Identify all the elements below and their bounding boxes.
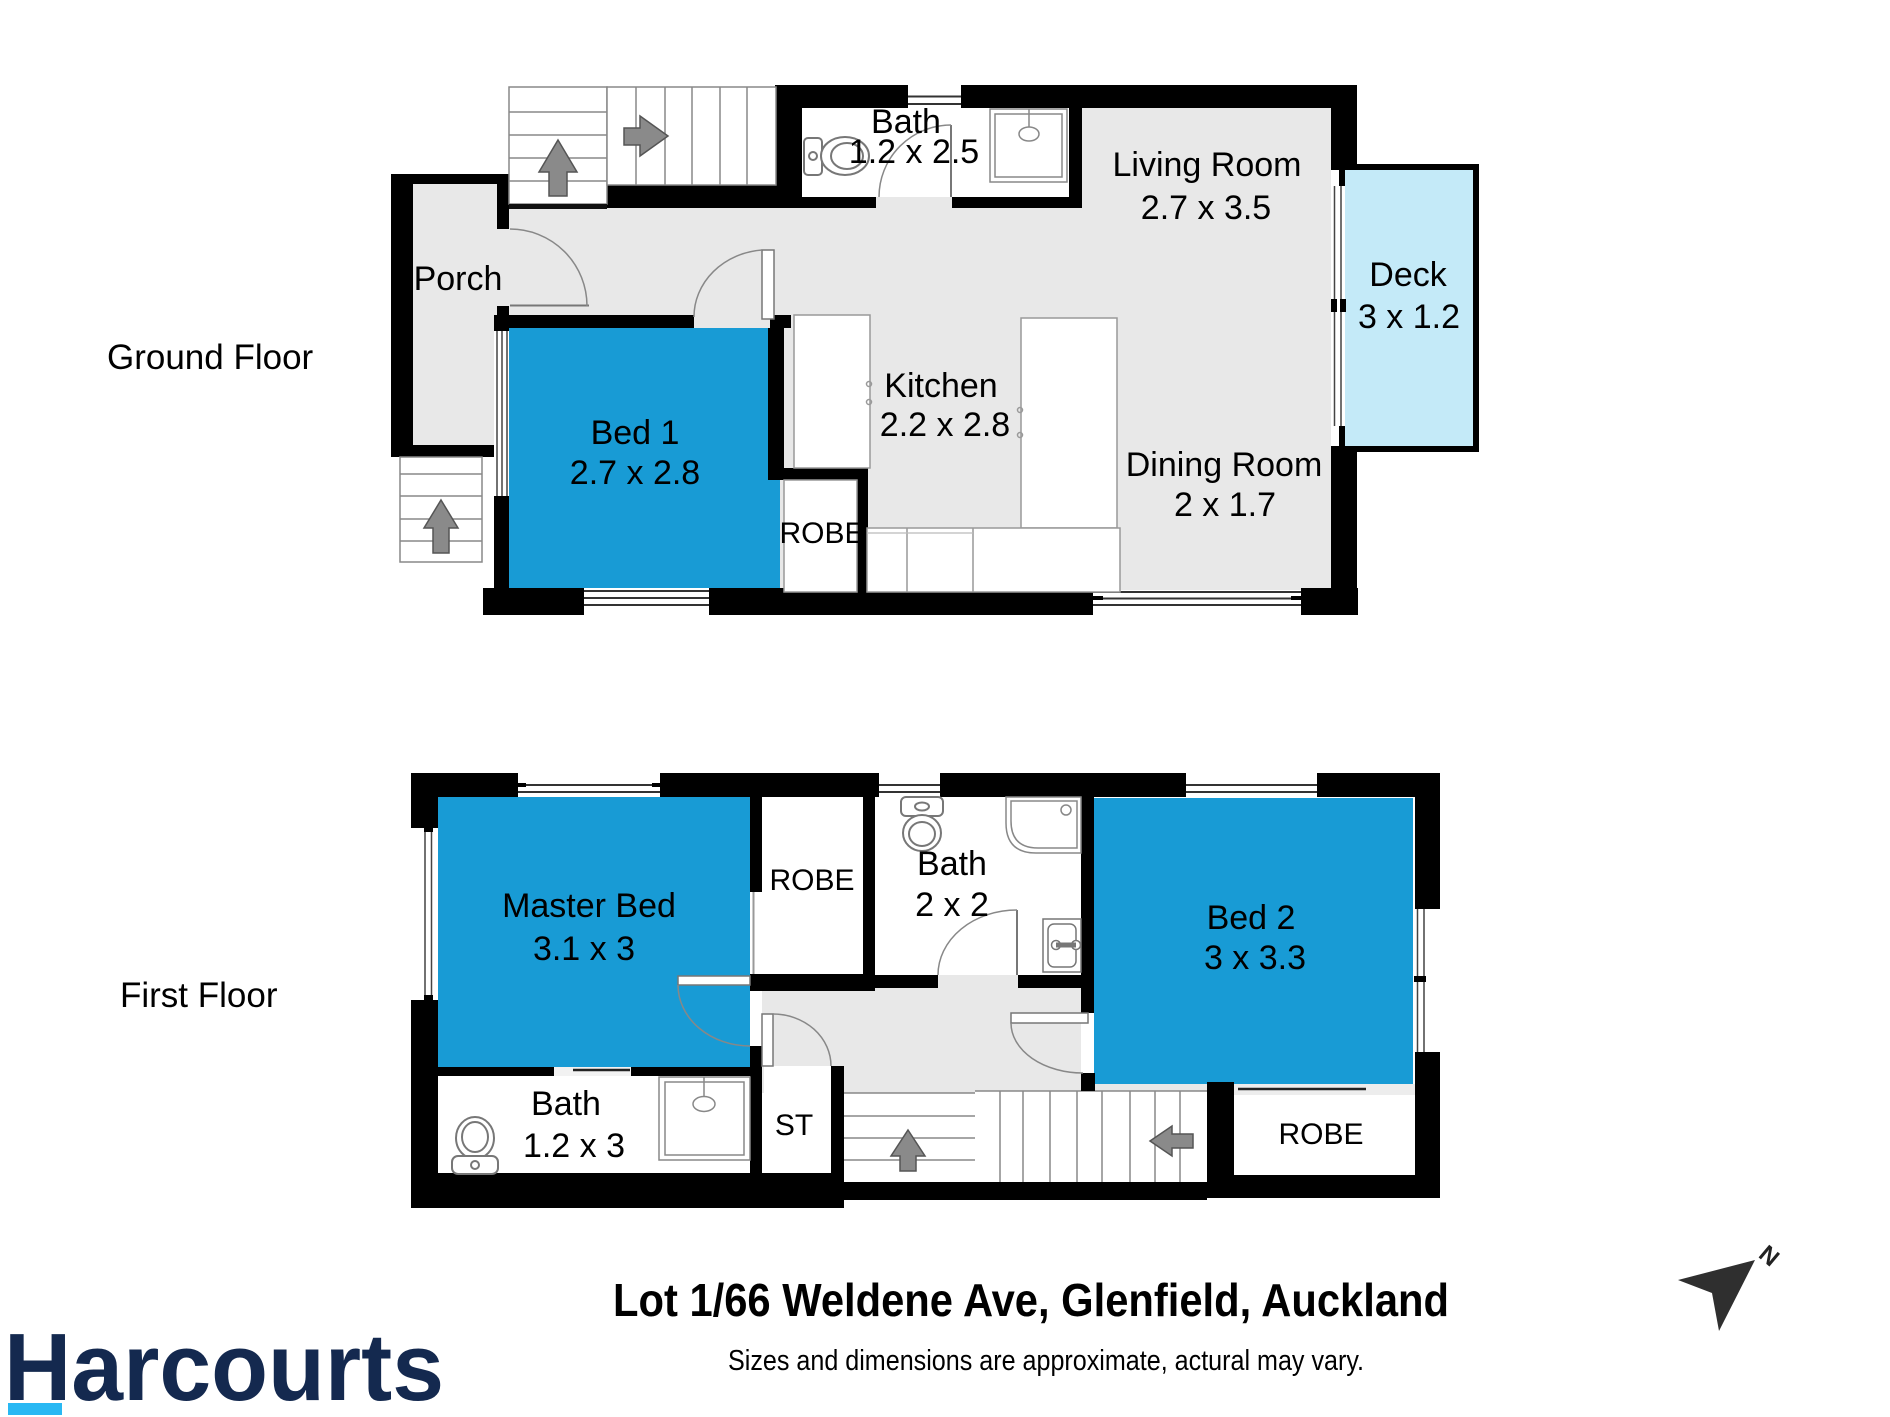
- svg-text:ROBE: ROBE: [779, 517, 864, 550]
- svg-text:Harcourts: Harcourts: [4, 1314, 444, 1417]
- svg-text:1.2 x 3: 1.2 x 3: [523, 1127, 625, 1165]
- svg-text:3.1 x 3: 3.1 x 3: [533, 930, 635, 968]
- svg-text:Bed 1: Bed 1: [591, 414, 680, 452]
- svg-text:2.7 x 2.8: 2.7 x 2.8: [570, 454, 700, 492]
- svg-text:Kitchen: Kitchen: [884, 367, 997, 405]
- svg-text:ST: ST: [775, 1109, 813, 1142]
- svg-text:3 x 3.3: 3 x 3.3: [1204, 939, 1306, 977]
- svg-text:Lot 1/66 Weldene Ave, Glenfiel: Lot 1/66 Weldene Ave, Glenfield, Aucklan…: [613, 1274, 1449, 1326]
- svg-text:First Floor: First Floor: [120, 976, 278, 1015]
- svg-text:1.2 x 2.5: 1.2 x 2.5: [849, 133, 979, 171]
- svg-text:Living Room: Living Room: [1113, 146, 1302, 184]
- svg-text:Deck: Deck: [1369, 256, 1447, 294]
- svg-text:3 x 1.2: 3 x 1.2: [1358, 298, 1460, 336]
- svg-text:Dining Room: Dining Room: [1126, 446, 1323, 484]
- svg-text:Ground Floor: Ground Floor: [107, 338, 314, 377]
- svg-text:2.7 x 3.5: 2.7 x 3.5: [1141, 189, 1271, 227]
- svg-text:ROBE: ROBE: [1278, 1118, 1363, 1151]
- svg-text:Sizes and dimensions are appro: Sizes and dimensions are approximate, ac…: [728, 1345, 1364, 1377]
- svg-text:Master Bed: Master Bed: [502, 887, 676, 925]
- svg-text:2 x 2: 2 x 2: [915, 886, 989, 924]
- svg-text:2.2 x 2.8: 2.2 x 2.8: [880, 406, 1010, 444]
- svg-text:Bed 2: Bed 2: [1207, 899, 1296, 937]
- svg-text:ROBE: ROBE: [769, 864, 854, 897]
- svg-text:Porch: Porch: [414, 260, 503, 298]
- svg-text:Bath: Bath: [917, 845, 987, 883]
- svg-text:2 x 1.7: 2 x 1.7: [1174, 486, 1276, 524]
- svg-text:Bath: Bath: [531, 1085, 601, 1123]
